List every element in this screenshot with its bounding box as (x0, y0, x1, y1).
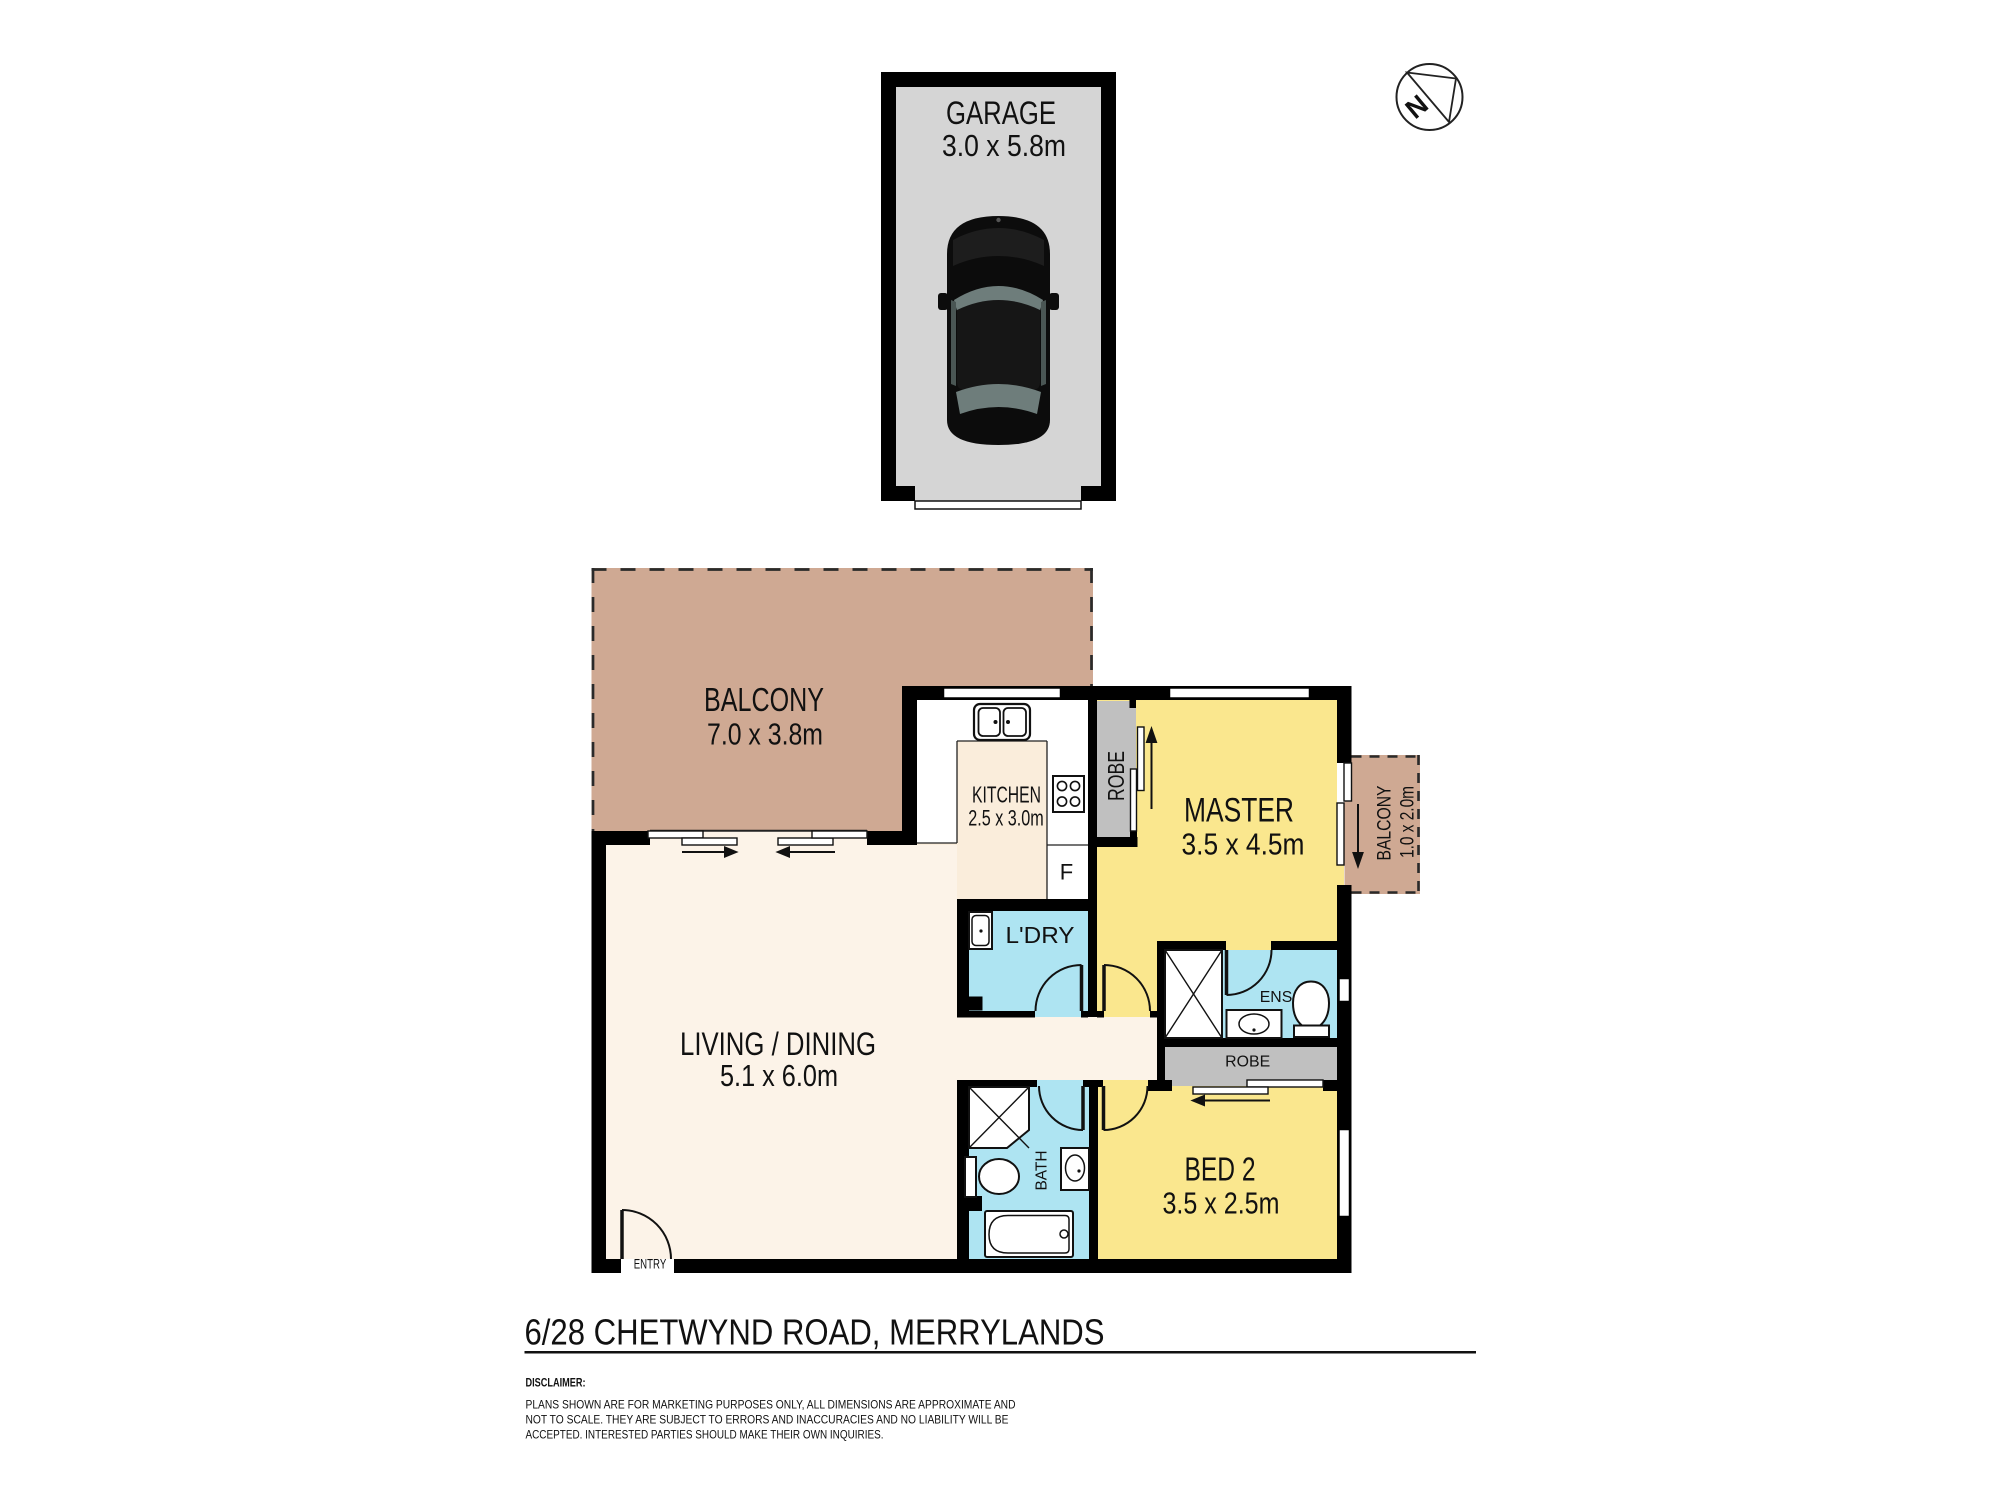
svg-text:ROBE: ROBE (1225, 1054, 1270, 1071)
svg-text:NOT TO SCALE. THEY ARE SUBJECT: NOT TO SCALE. THEY ARE SUBJECT TO ERRORS… (526, 1413, 1009, 1427)
svg-text:7.0 x 3.8m: 7.0 x 3.8m (707, 717, 823, 752)
svg-text:ENS: ENS (1260, 989, 1293, 1006)
svg-text:BALCONY: BALCONY (704, 681, 824, 718)
svg-text:5.1 x 6.0m: 5.1 x 6.0m (720, 1058, 838, 1093)
svg-text:ROBE: ROBE (1103, 751, 1129, 801)
svg-text:MASTER: MASTER (1184, 792, 1294, 830)
svg-text:BALCONY: BALCONY (1374, 785, 1395, 860)
svg-text:3.0 x 5.8m: 3.0 x 5.8m (942, 128, 1066, 163)
svg-text:3.5 x 2.5m: 3.5 x 2.5m (1163, 1186, 1280, 1221)
svg-text:6/28 CHETWYND ROAD, MERRYLANDS: 6/28 CHETWYND ROAD, MERRYLANDS (525, 1312, 1105, 1353)
svg-text:BED 2: BED 2 (1185, 1151, 1256, 1188)
svg-text:KITCHEN: KITCHEN (972, 782, 1041, 808)
svg-text:DISCLAIMER:: DISCLAIMER: (526, 1376, 586, 1390)
svg-text:LIVING / DINING: LIVING / DINING (680, 1026, 876, 1062)
svg-text:3.5 x 4.5m: 3.5 x 4.5m (1182, 827, 1305, 862)
svg-text:L'DRY: L'DRY (1006, 922, 1075, 948)
svg-text:2.5 x 3.0m: 2.5 x 3.0m (968, 806, 1044, 831)
svg-text:F: F (1060, 860, 1073, 885)
svg-text:PLANS SHOWN ARE FOR MARKETING: PLANS SHOWN ARE FOR MARKETING PURPOSES O… (526, 1398, 1016, 1412)
svg-text:ENTRY: ENTRY (634, 1256, 667, 1272)
svg-text:1.0 x 2.0m: 1.0 x 2.0m (1398, 786, 1419, 858)
svg-text:GARAGE: GARAGE (946, 95, 1056, 131)
svg-text:BATH: BATH (1034, 1151, 1051, 1191)
svg-text:ACCEPTED. INTERESTED PARTIES S: ACCEPTED. INTERESTED PARTIES SHOULD MAKE… (526, 1428, 884, 1442)
